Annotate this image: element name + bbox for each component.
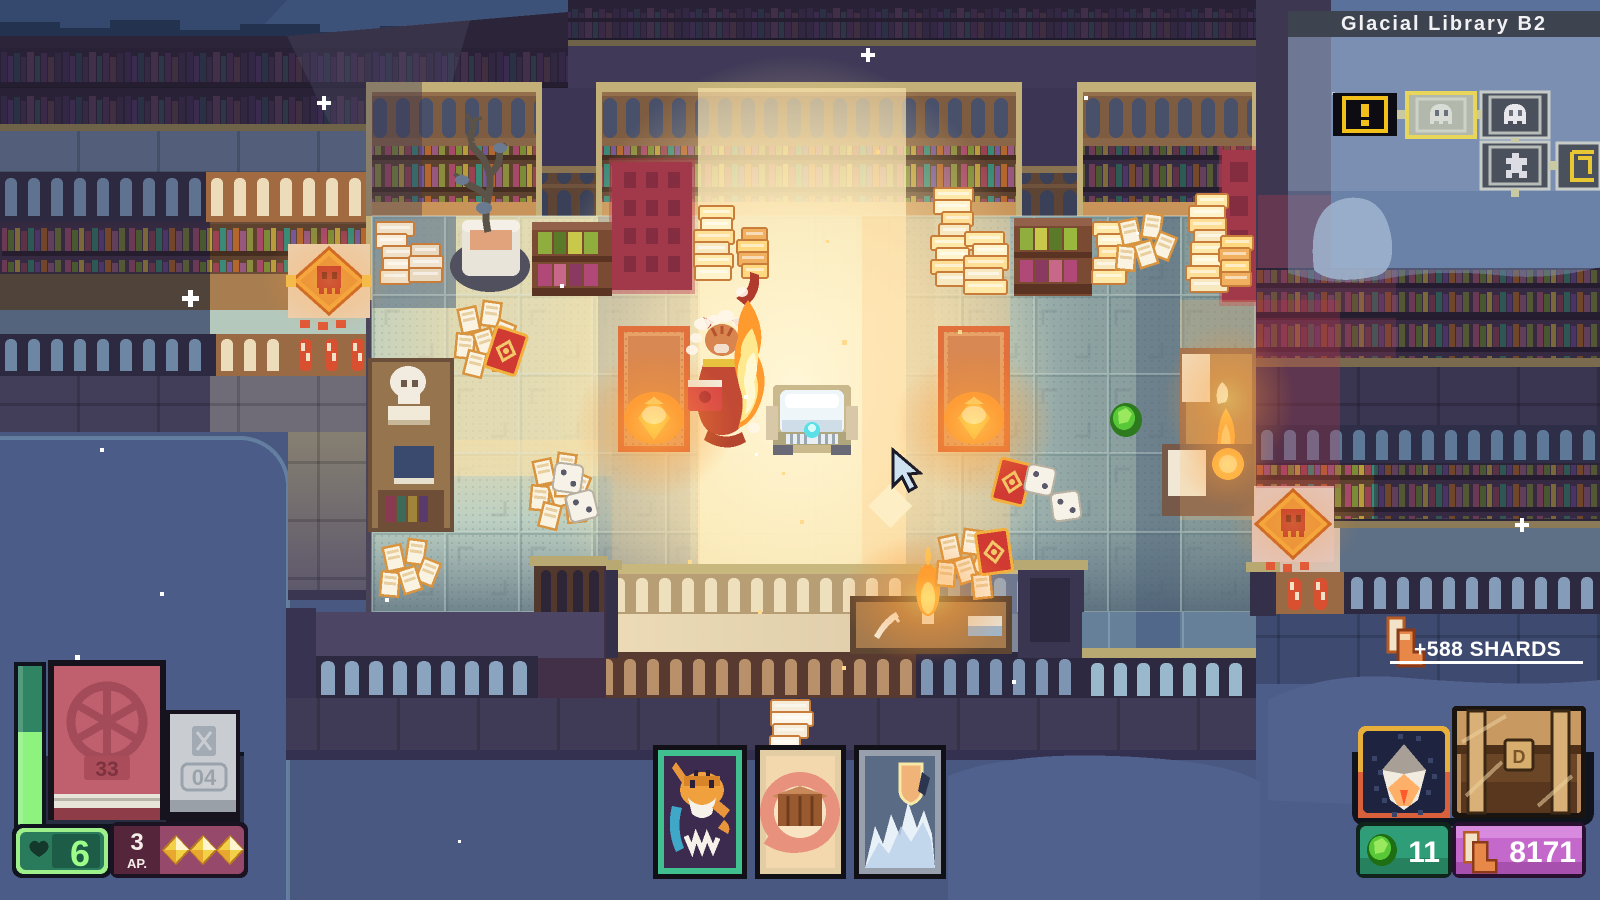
- svg-text:8171: 8171: [1509, 836, 1576, 869]
- svg-text:33: 33: [95, 758, 118, 781]
- svg-text:3: 3: [130, 829, 143, 856]
- svg-text:+588 SHARDS: +588 SHARDS: [1414, 638, 1561, 661]
- svg-text:D: D: [1513, 747, 1526, 767]
- svg-text:6: 6: [70, 833, 90, 874]
- svg-text:04: 04: [192, 765, 217, 790]
- svg-text:11: 11: [1408, 836, 1440, 869]
- svg-text:AP.: AP.: [127, 856, 147, 871]
- svg-text:Glacial Library B2: Glacial Library B2: [1341, 13, 1547, 35]
